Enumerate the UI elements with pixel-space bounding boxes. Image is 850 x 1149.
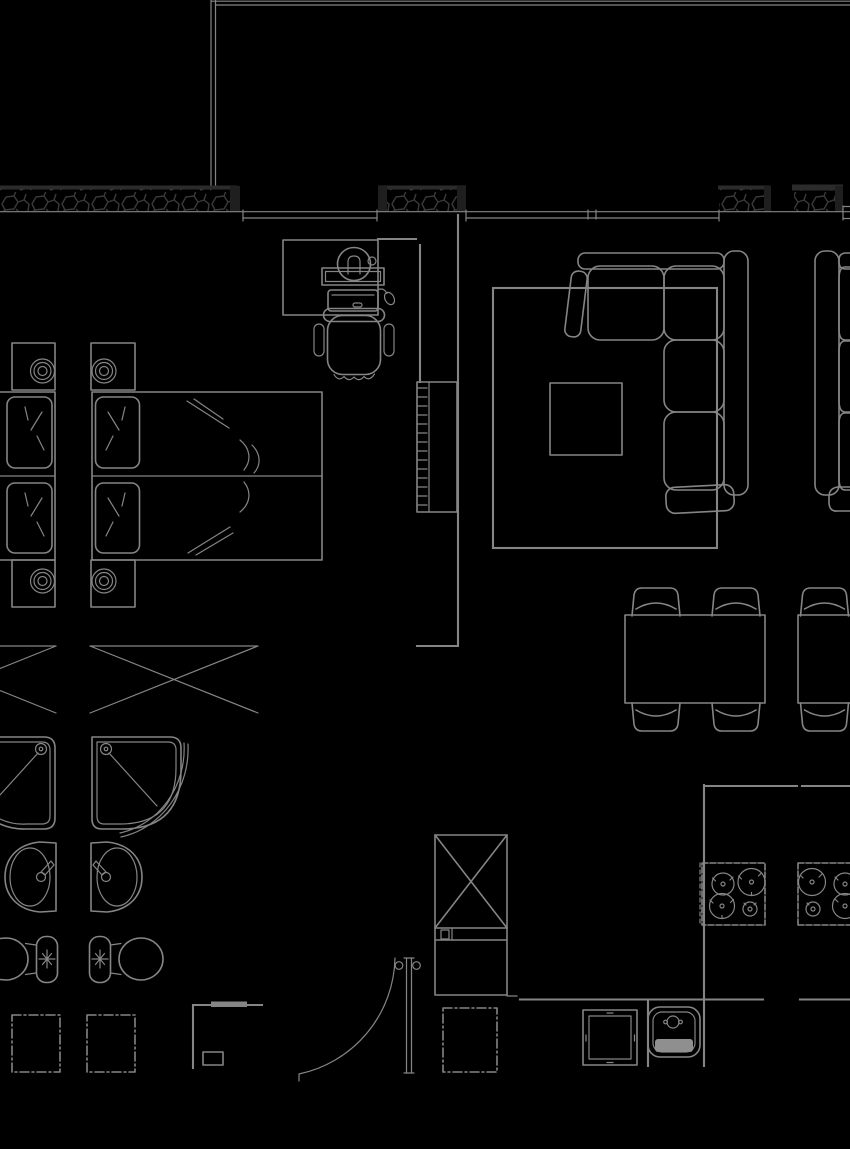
shaft-box	[435, 835, 517, 996]
faucet-icon	[667, 1016, 679, 1028]
mouse-icon	[379, 289, 397, 306]
washbasin-left	[5, 842, 56, 912]
exterior-wall-band	[0, 185, 843, 213]
door-swing-arc	[299, 958, 395, 1081]
shower-right	[92, 737, 188, 837]
balcony-boundary-wall	[211, 0, 850, 189]
sink-drainboard	[655, 1039, 693, 1052]
dining-neighbor	[798, 588, 850, 731]
shower-left	[0, 737, 55, 829]
washer-square	[12, 1015, 135, 1072]
hall-cabinet	[193, 1002, 262, 1069]
kitchen-sink	[648, 1007, 700, 1057]
desk-shelf	[322, 268, 384, 285]
cooktop	[700, 863, 765, 925]
dishwasher	[583, 1010, 637, 1065]
interior-walls	[378, 215, 458, 646]
sofa-neighbor	[815, 251, 850, 511]
office-chair	[314, 309, 394, 380]
pillow	[96, 397, 140, 468]
washbasin-right	[91, 842, 142, 912]
wardrobe	[417, 382, 457, 512]
door-hinge-icon	[395, 962, 403, 970]
desk	[283, 240, 397, 315]
closet-x-symbol	[0, 646, 258, 713]
toilet-left	[0, 937, 58, 983]
bed-main	[92, 392, 322, 560]
duvet-folds	[187, 399, 259, 555]
cooktop-neighbor	[798, 863, 850, 925]
toilet-right	[90, 937, 164, 983]
dining-table	[625, 615, 765, 703]
dining-set	[625, 588, 765, 731]
rug	[493, 288, 717, 548]
dashed-cabinet	[443, 1008, 497, 1072]
pillow	[96, 483, 140, 553]
sofa-armrest	[564, 270, 588, 337]
entrance-door	[299, 958, 420, 1081]
coffee-table	[550, 383, 622, 455]
floor-plan-canvas: Apartment floor plan — black-background …	[0, 0, 850, 1149]
nightstand	[12, 343, 135, 607]
bed-neighbor	[0, 392, 55, 560]
door-hinge-icon	[413, 962, 421, 970]
desk-lamp-icon	[338, 248, 377, 281]
